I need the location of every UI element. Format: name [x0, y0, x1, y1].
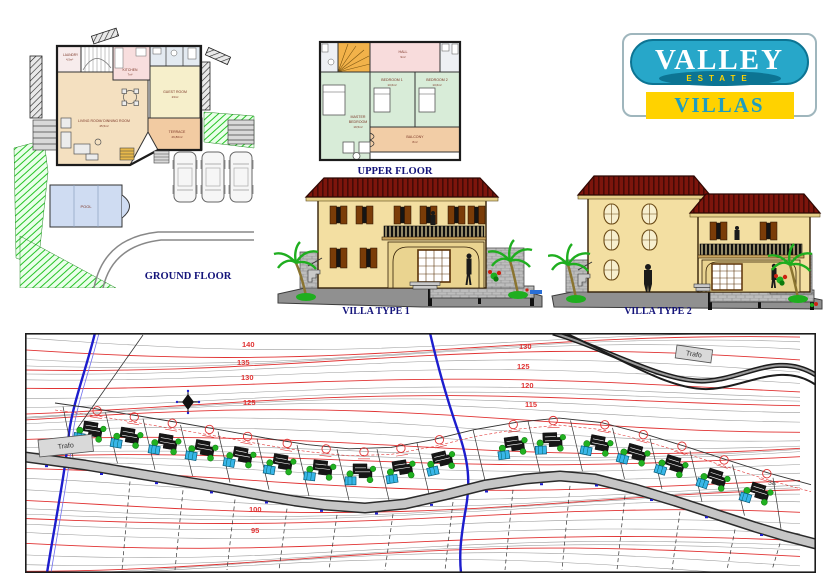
contour-label: 130 [519, 342, 532, 351]
contour-label: 125 [243, 398, 256, 407]
upper-staircase [338, 42, 370, 72]
main-road [25, 457, 816, 544]
bedroom1-label: BEDROOM 1 [381, 78, 403, 82]
kitchen-label: KITCHEN [123, 68, 138, 72]
room-bath [150, 46, 200, 66]
bedroom2-area: 13,6m² [432, 83, 441, 87]
swimming-pool: POOL [50, 185, 130, 227]
roof-left [578, 176, 710, 195]
living-area: 45,5m² [99, 124, 108, 128]
villa-plot [223, 429, 260, 471]
staircase [81, 46, 113, 72]
villa-plot [185, 422, 222, 464]
hall-label: HALL [399, 50, 408, 54]
site-plan: 14013513012513012512011510095TrafoTrafo3… [25, 333, 816, 573]
master-area: 19,5m² [353, 125, 362, 129]
contour-label: 115 [525, 400, 537, 409]
contour-label: 100 [249, 505, 262, 514]
villa-plot [580, 417, 617, 459]
upper-bath-left [320, 42, 338, 72]
contour-lines [25, 333, 800, 573]
roof [306, 178, 498, 197]
villa1-title: VILLA TYPE 1 [342, 306, 410, 317]
terrace-area: 26,80m² [171, 135, 182, 139]
ground-floor-title: GROUND FLOOR [145, 271, 232, 282]
logo-estate-band: ESTATE [659, 71, 781, 86]
upper-floor-plan: HALL 9m² BEDROOM 1 13,6m² BEDROOM 2 13,6… [303, 30, 473, 180]
contour-label: 95 [251, 526, 259, 535]
hall-area: 9m² [400, 55, 405, 59]
valley-estate-logo: VALLEY ESTATE VILLAS [622, 33, 817, 117]
villa-type-1-elevation: VILLA TYPE 1 [272, 166, 548, 318]
room-terrace [148, 118, 202, 150]
villa-plots [73, 404, 779, 509]
site-plan-content: 14013513012513012512011510095TrafoTrafo3… [25, 333, 816, 573]
contour-label: 130 [241, 373, 254, 382]
roof-eave [306, 197, 498, 201]
trafo-left: Trafo [38, 434, 93, 457]
villa2-title: VILLA TYPE 2 [624, 306, 692, 317]
living-label: LIVING ROOM/ DINNING ROOM [78, 119, 130, 123]
balcony-railing [384, 226, 484, 238]
ground-floor-plan: POOL LAUNDRY 4,5m² KITCHEN [8, 20, 268, 288]
roof-right [690, 194, 820, 213]
laundry-area: 4,5m² [66, 58, 73, 62]
parked-cars [173, 152, 254, 202]
upper-bath-right [440, 42, 460, 72]
terrace-label: TERRACE [169, 130, 186, 134]
pool-label: POOL [80, 204, 92, 209]
laundry-label: LAUNDRY [63, 53, 79, 57]
balcony-label: BALCONY [406, 135, 424, 139]
villa-type-2-elevation: VILLA TYPE 2 [548, 166, 828, 318]
drawing-sheet: { "titles": { "ground_floor": "GROUND FL… [0, 0, 840, 586]
trafo-right: Trafo [675, 345, 712, 363]
balcony-railing [700, 244, 802, 256]
guest-area: 23m² [172, 95, 179, 99]
balcony-area: 8m² [412, 140, 417, 144]
balcony-floor [382, 237, 486, 240]
bedroom2-label: BEDROOM 2 [426, 78, 448, 82]
master-label-1: MASTER [351, 115, 366, 119]
roof-eave-left [578, 195, 710, 199]
contour-label: 140 [242, 340, 255, 349]
contour-label: 135 [237, 358, 250, 367]
guest-label: GUEST ROOM [163, 90, 187, 94]
contour-label: 125 [517, 362, 530, 371]
logo-valley-pill: VALLEY ESTATE [630, 39, 809, 85]
corner-note: 3a [768, 480, 776, 487]
bedroom1-area: 13,6m² [387, 83, 396, 87]
master-label-2: BEDROOM [349, 120, 368, 124]
logo-villas-text: VILLAS [646, 92, 794, 119]
roof-eave-right [690, 213, 820, 217]
contour-label: 120 [521, 381, 534, 390]
kitchen-area: 7m² [128, 73, 133, 77]
north-arrow-icon [176, 390, 200, 414]
